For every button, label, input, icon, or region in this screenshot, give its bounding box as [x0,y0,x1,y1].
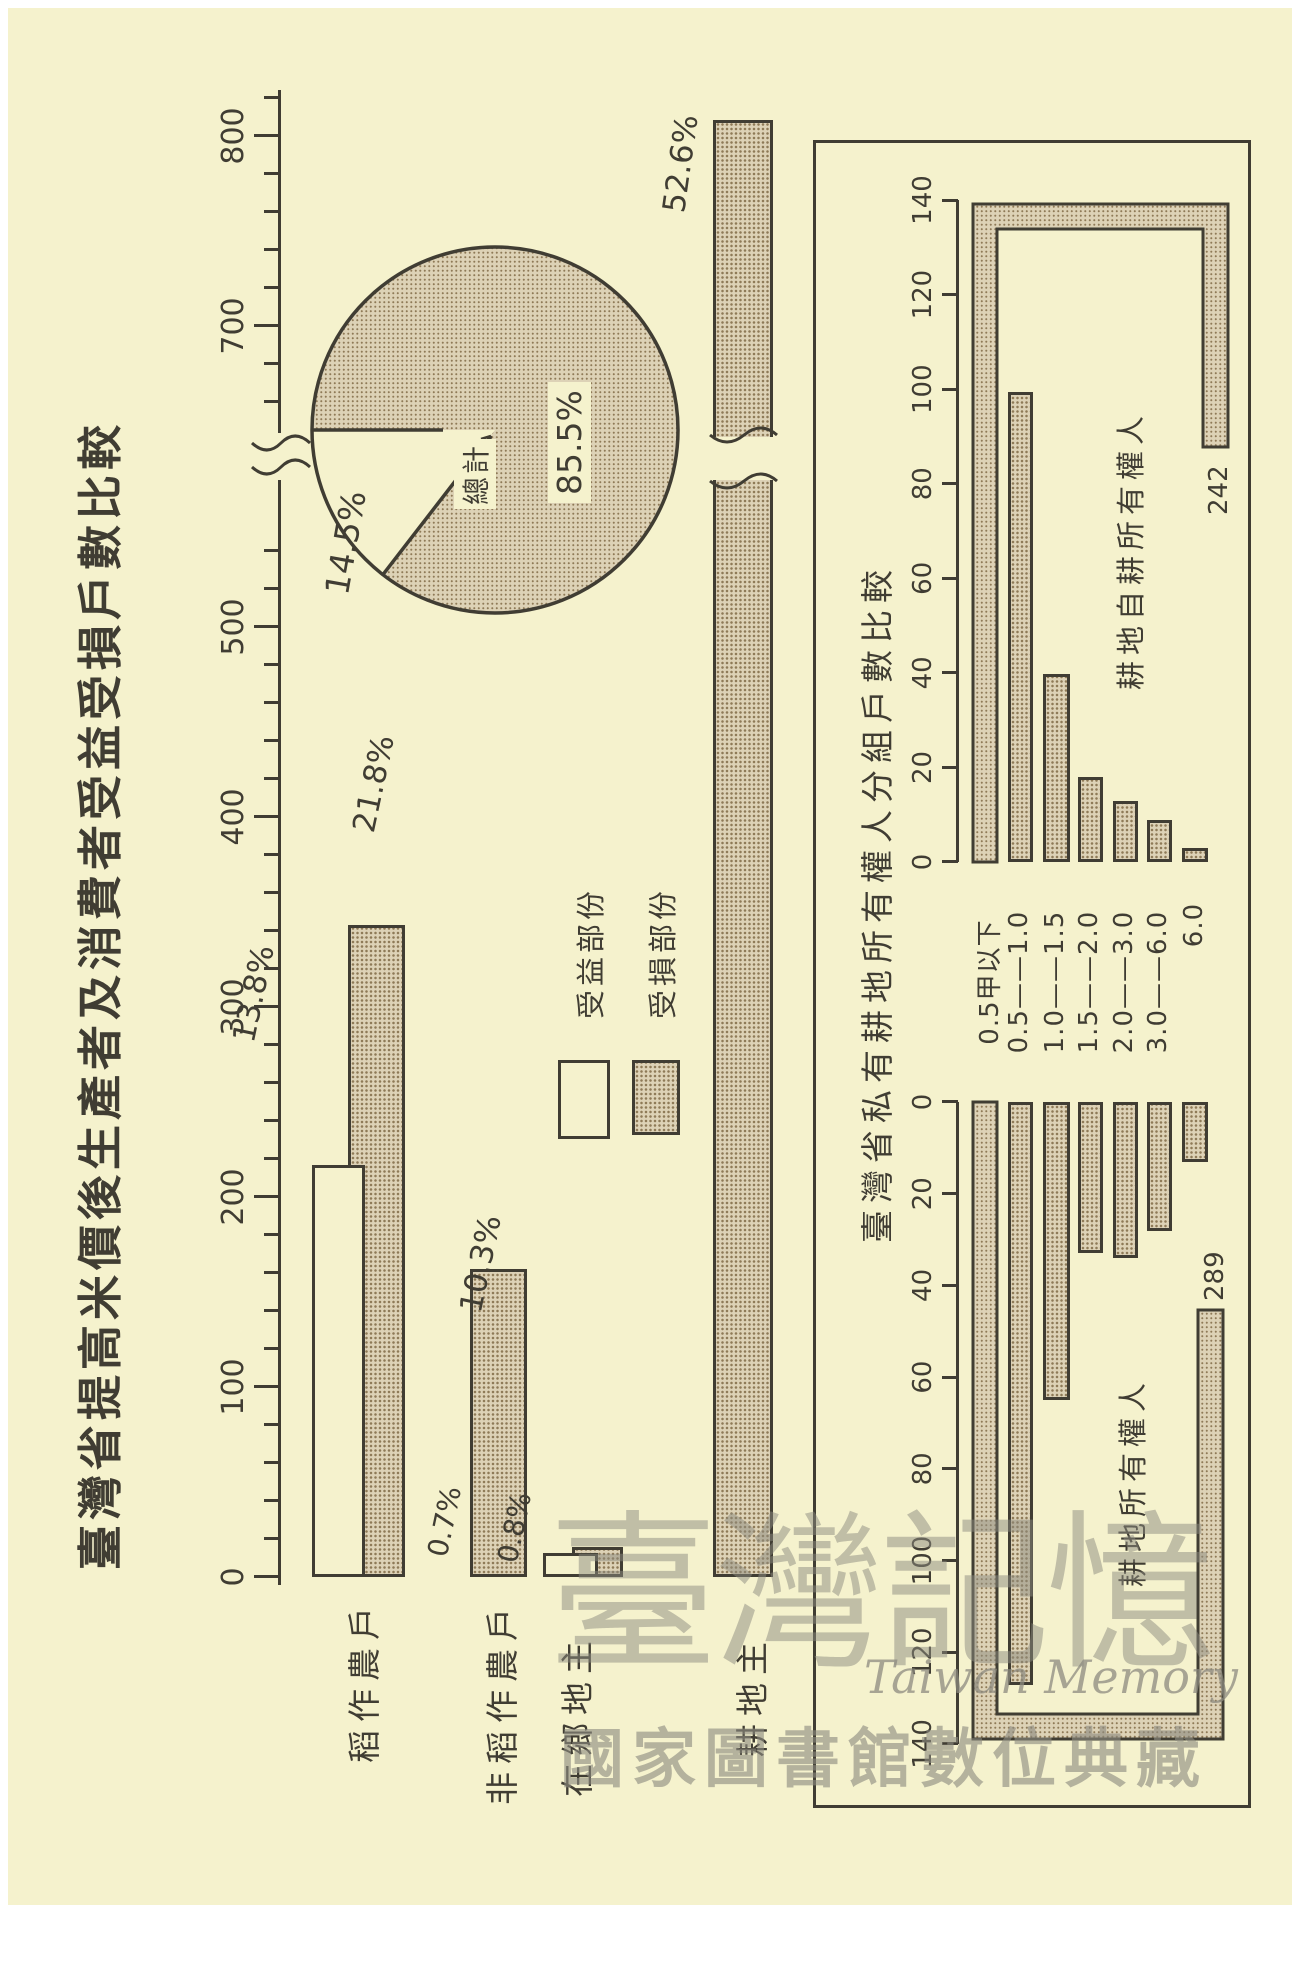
pct-label-resident-benefit: 0.7% [421,1483,468,1559]
owners-left-axis-tick [942,1376,958,1379]
main-axis-minor-tick [264,550,278,553]
owners-left-axis-tick-label: 60 [908,1347,938,1407]
page-title: 臺灣省提高米價後生產者及消費者受益受損戶數比較 [64,420,129,1570]
owners-right-axis-tick-label: 20 [908,737,938,797]
pie-loss-pct: 85.5% [548,382,591,503]
pct-label-landlords-loss: 52.6% [656,112,705,215]
bar-landlords-loss-seg2 [713,120,773,437]
main-axis-major-tick [254,325,278,328]
main-axis-tick-label: 400 [216,772,251,862]
main-axis-minor-tick [264,249,278,252]
land-size-group-label: 0.5甲以下 [969,862,1006,1102]
owners-left-axis-tick-label: 40 [908,1255,938,1315]
watermark-latin-text: Taiwan Memory [864,1650,1238,1704]
left-folded-bar-value: 289 [1200,1251,1230,1301]
main-axis-major-tick [254,1196,278,1199]
main-axis-major-tick [254,1006,278,1009]
main-axis-minor-tick [264,1538,278,1541]
main-axis-minor-tick [264,968,278,971]
scanned-chart-page: 臺灣省提高米價後生產者及消費者受益受損戶數比較 稻作農戶 非稻作農戶 在鄉地主 … [8,8,1292,1905]
owners-left-axis-tick-label: 0 [908,1072,938,1132]
main-axis-minor-tick [264,1348,278,1351]
main-axis-major-tick [254,626,278,629]
bar-break-squiggle [706,417,782,497]
land-size-group-label: 0.5——1.0 [1004,862,1034,1102]
main-axis-tick-label: 800 [216,91,251,181]
main-axis-major-tick [254,1576,278,1579]
owners-left-axis-tick-label: 20 [908,1164,938,1224]
land-size-group-label: 1.0——1.5 [1040,862,1070,1102]
main-axis-minor-tick [264,173,278,176]
owners-right-axis-tick-label: 0 [908,832,938,892]
legend-loss-swatch [632,1060,680,1135]
owners-right-axis-tick [942,861,958,864]
main-axis-minor-tick [264,1234,278,1237]
land-size-group-label: 2.0——3.0 [1109,862,1139,1102]
main-axis-minor-tick [264,740,278,743]
main-axis-minor-tick [264,778,278,781]
owners-right-axis-tick-label: 140 [908,170,938,230]
main-axis-minor-tick [264,892,278,895]
main-axis-minor-tick [264,1424,278,1427]
main-axis-tick-label: 200 [216,1152,251,1242]
owners-right-axis-tick [942,482,958,485]
owners-right-axis-tick [942,766,958,769]
main-axis-minor-tick [264,1500,278,1503]
main-axis-tick-label: 0 [216,1532,251,1622]
main-axis-minor-tick [264,363,278,366]
owners-right-axis-tick [942,671,958,674]
watermark-library-text: 國家圖書館數位典藏 [560,1708,1208,1800]
main-axis-tick-label: 700 [216,281,251,371]
main-axis-minor-tick [264,97,278,100]
owners-right-axis-tick [942,577,958,580]
main-axis-minor-tick [264,1082,278,1085]
main-axis-minor-tick [264,1272,278,1275]
main-axis-minor-tick [264,588,278,591]
main-axis-minor-tick [264,1462,278,1465]
main-axis-major-tick [254,816,278,819]
owners-left-axis-tick [942,1101,958,1104]
owners-right-axis-tick [942,388,958,391]
legend-benefit-swatch [558,1060,610,1139]
land-size-group-label: 6.0 [1179,805,1209,1045]
pie-total-label: 總計 [454,439,496,509]
owners-right-axis-tick [942,199,958,202]
owners-right-axis-tick-label: 80 [908,454,938,514]
main-axis-tick-label: 300 [216,962,251,1052]
owners-left-axis-tick [942,1192,958,1195]
legend-benefit-label: 受益部份 [568,887,610,1019]
category-label-nonrice-farmers: 非稻作農戶 [476,1600,524,1805]
right-series-title: 耕地自耕所有權人 [1108,410,1150,690]
main-axis-line-right [278,90,281,433]
main-axis-minor-tick [264,664,278,667]
owners-right-axis-tick-label: 40 [908,643,938,703]
pct-label-rice-loss: 21.8% [346,732,402,836]
legend-loss-label: 受損部份 [640,887,682,1019]
main-axis-minor-tick [264,1044,278,1047]
main-axis-minor-tick [264,211,278,214]
main-axis-minor-tick [264,930,278,933]
land-size-group-label: 3.0——6.0 [1143,862,1173,1102]
owners-right-axis-tick-label: 60 [908,548,938,608]
main-axis-minor-tick [264,1120,278,1123]
owners-right-axis-tick-label: 100 [908,359,938,419]
owners-right-axis-tick [942,293,958,296]
main-axis-major-tick [254,1386,278,1389]
right-folded-bar-value: 242 [1204,465,1234,515]
main-axis-minor-tick [264,287,278,290]
category-label-rice-farmers: 稻作農戶 [338,1599,386,1763]
bar-landlords-loss-seg1 [713,480,773,1577]
main-axis-minor-tick [264,1310,278,1313]
main-axis-minor-tick [264,702,278,705]
bar-rice-farmers-benefit [312,1165,365,1577]
main-axis-minor-tick [264,1158,278,1161]
land-size-group-label: 1.5——2.0 [1074,862,1104,1102]
owners-left-axis-tick [942,1284,958,1287]
main-axis-line-left [278,480,281,1585]
main-axis-major-tick [254,135,278,138]
main-axis-minor-tick [264,854,278,857]
main-axis-tick-label: 500 [216,582,251,672]
main-axis-minor-tick [264,401,278,404]
owners-right-axis-tick-label: 120 [908,265,938,325]
bar-right-group1-folded [973,204,1228,862]
main-axis-tick-label: 100 [216,1342,251,1432]
